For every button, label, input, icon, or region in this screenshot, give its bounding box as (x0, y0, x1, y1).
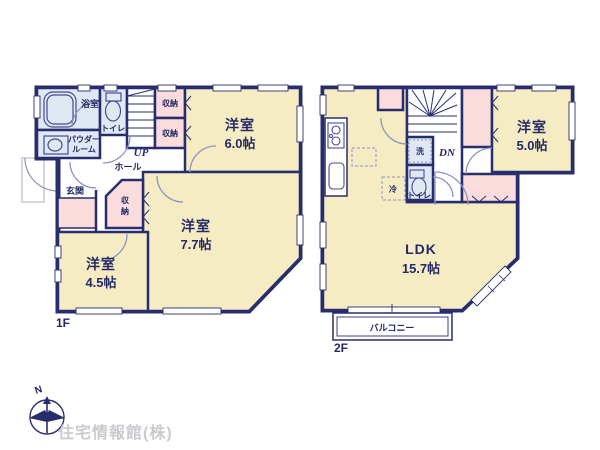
room6-name: 洋室 (225, 117, 255, 133)
genkan-step (58, 198, 96, 228)
bedroom-77 (143, 172, 300, 311)
genkan-label: 玄関 (66, 185, 84, 196)
fridge-label: 冷 (389, 184, 397, 194)
floorplan-drawing: 浴室 トイレ パウダー ルーム UP ホール 玄関 収納 収納 収 納 洋室 6… (0, 0, 600, 450)
closet-d (462, 88, 492, 147)
closet-f (378, 88, 403, 110)
closet-a-label: 収納 (162, 98, 178, 108)
entrance-door-arc (25, 158, 58, 191)
balcony-label: バルコニー (370, 323, 415, 333)
floor2-plan: DN 洗 トイレ 冷 洋室 5.0帖 LDK 15.7帖 バルコニー 2F (320, 85, 575, 355)
ldk-name: LDK (405, 241, 437, 257)
closet-c-label-2: 納 (121, 206, 129, 216)
room77-size: 7.7帖 (180, 237, 211, 252)
toilet-label-2f: トイレ (407, 191, 431, 200)
compass-north-label: N (34, 384, 44, 397)
powder-label-1: パウダー (68, 134, 100, 144)
room5-size: 5.0帖 (516, 138, 547, 153)
room77-name: 洋室 (181, 218, 211, 234)
powder-label-2: ルーム (72, 145, 96, 154)
room45-size: 4.5帖 (85, 275, 116, 290)
room45-name: 洋室 (86, 256, 116, 272)
hall-label: ホール (114, 162, 141, 172)
floor1-plan: 浴室 トイレ パウダー ルーム UP ホール 玄関 収納 収納 収 納 洋室 6… (22, 85, 303, 330)
closet-b-label: 収納 (162, 128, 178, 138)
closet-c-label-1: 収 (121, 195, 130, 205)
room6-size: 6.0帖 (224, 136, 255, 151)
floorplan-page: 浴室 トイレ パウダー ルーム UP ホール 玄関 収納 収納 収 納 洋室 6… (0, 0, 600, 450)
toilet-label-1f: トイレ (101, 124, 125, 133)
dn-label: DN (438, 147, 456, 159)
up-label: UP (134, 147, 149, 159)
closet-e (462, 174, 517, 202)
floor1-label: 1F (56, 316, 70, 330)
room5-name: 洋室 (517, 119, 547, 135)
ldk-size: 15.7帖 (402, 261, 440, 276)
floor2-label: 2F (334, 341, 348, 355)
bath-label: 浴室 (81, 98, 99, 109)
company-logo-text: 住宅情報館(株) (58, 423, 173, 442)
staircase-1f (127, 88, 155, 148)
wash-label: 洗 (416, 146, 424, 156)
